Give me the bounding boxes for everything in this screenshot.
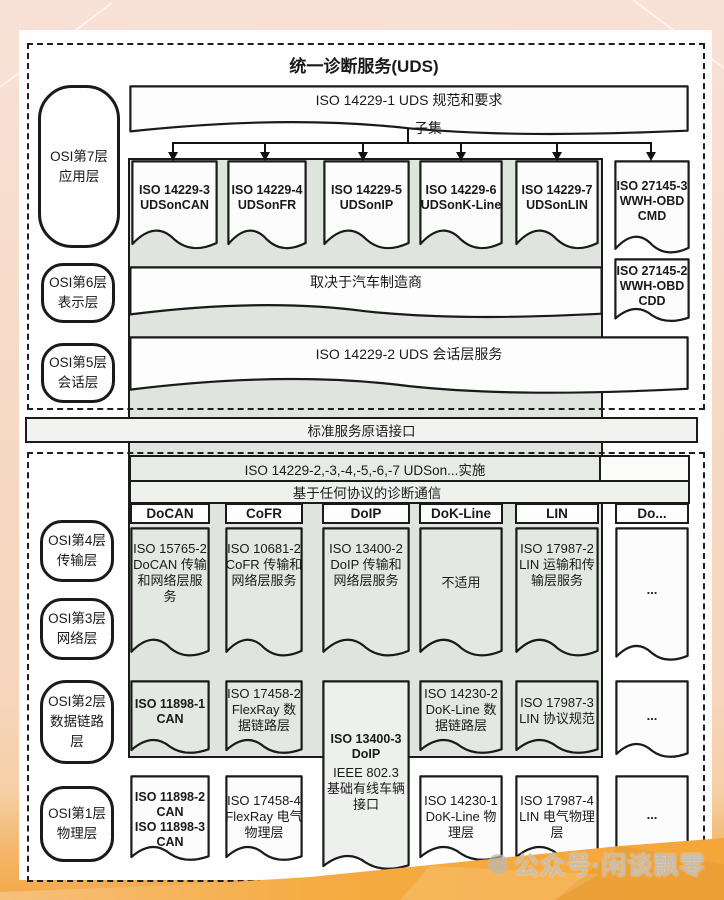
osi-layer2-label: OSI第2层 数据链路 层 — [40, 680, 114, 764]
osi-layer6-label: OSI第6层 表示层 — [41, 263, 115, 323]
column-header-cofr: CoFR — [225, 503, 303, 524]
udsonlin-box: ISO 14229-7 UDSonLIN — [515, 160, 599, 252]
udsoncan-box: ISO 14229-3 UDSonCAN — [131, 160, 218, 252]
flexray-datalink-cell: ISO 17458-2 FlexRay 数 据链路层 — [225, 680, 303, 756]
dokline-not-applicable-cell: 不适用 — [419, 527, 503, 659]
any-protocol-diagnostic-bar: 基于任何协议的诊断通信 — [129, 480, 690, 504]
flexray-physical-cell: ISO 17458-4 FlexRay 电气 物理层 — [225, 775, 303, 863]
column-header-do-more: Do... — [615, 503, 689, 524]
lin-transport-cell: ISO 17987-2 LIN 运输和传 输层服务 — [515, 527, 599, 659]
subset-label: 子集 — [414, 118, 442, 138]
lin-datalink-cell: ISO 17987-3 LIN 协议规范 — [515, 680, 599, 756]
column-header-dokline: DoK-Line — [419, 503, 503, 524]
udsonip-box: ISO 14229-5 UDSonIP — [323, 160, 410, 252]
osi-layer3-label: OSI第3层 网络层 — [40, 598, 114, 660]
subset-connector-hline — [173, 142, 652, 144]
doip-transport-cell: ISO 13400-2 DoIP 传输和 网络层服务 — [322, 527, 410, 659]
column-header-doip: DoIP — [322, 503, 410, 524]
osi-layer4-label: OSI第4层 传输层 — [40, 520, 114, 582]
watermark: 公众号·闲谈飘零 — [488, 846, 705, 882]
osi-layer5-label: OSI第5层 会话层 — [41, 343, 115, 403]
session-layer-box: ISO 14229-2 UDS 会话层服务 — [129, 336, 689, 396]
diagram-title: 统一诊断服务(UDS) — [34, 52, 694, 77]
service-primitive-interface-bar: 标准服务原语接口 — [25, 417, 698, 443]
manufacturer-dependent-box: 取决于汽车制造商 — [129, 266, 603, 320]
watermark-logo-icon — [488, 854, 508, 874]
udsonfr-box: ISO 14229-4 UDSonFR — [227, 160, 307, 252]
docan-transport-cell: ISO 15765-2 DoCAN 传输 和网络层服 务 — [130, 527, 210, 659]
do-more-transport-cell: ... — [615, 527, 689, 663]
osi-layer7-label: OSI第7层 应用层 — [38, 85, 120, 248]
uds-spec-box: ISO 14229-1 UDS 规范和要求 — [129, 85, 689, 137]
implementation-bar-extension — [599, 455, 690, 482]
column-header-lin: LIN — [515, 503, 599, 524]
doip-ethernet-box: ISO 13400-3 DoIP IEEE 802.3 基础有线车辆 接口 — [322, 680, 410, 872]
uds-osi-diagram: 统一诊断服务(UDS) OSI第7层 应用层 OSI第6层 表示层 OSI第5层… — [0, 0, 724, 900]
any-protocol-diagnostic-label: 基于任何协议的诊断通信 — [131, 482, 603, 502]
udson-implementation-bar: ISO 14229-2,-3,-4,-5,-6,-7 UDSon...实施 — [129, 455, 601, 482]
can-datalink-cell: ISO 11898-1 CAN — [130, 680, 210, 756]
can-physical-cell: ISO 11898-2 CAN ISO 11898-3 CAN — [130, 775, 210, 863]
cofr-transport-cell: ISO 10681-2 CoFR 传输和 网络层服务 — [225, 527, 303, 659]
do-more-datalink-cell: ... — [615, 680, 689, 760]
column-header-docan: DoCAN — [130, 503, 210, 524]
dokline-datalink-cell: ISO 14230-2 DoK-Line 数 据链路层 — [419, 680, 503, 756]
udsonkline-box: ISO 14229-6 UDSonK-Line — [419, 160, 503, 252]
wwh-obd-cdd-box: ISO 27145-2 WWH-OBD CDD — [614, 258, 690, 324]
osi-layer1-label: OSI第1层 物理层 — [40, 786, 114, 862]
wwh-obd-cmd-box: ISO 27145-3 WWH-OBD CMD — [614, 160, 690, 256]
watermark-text: 公众号·闲谈飘零 — [514, 846, 705, 882]
